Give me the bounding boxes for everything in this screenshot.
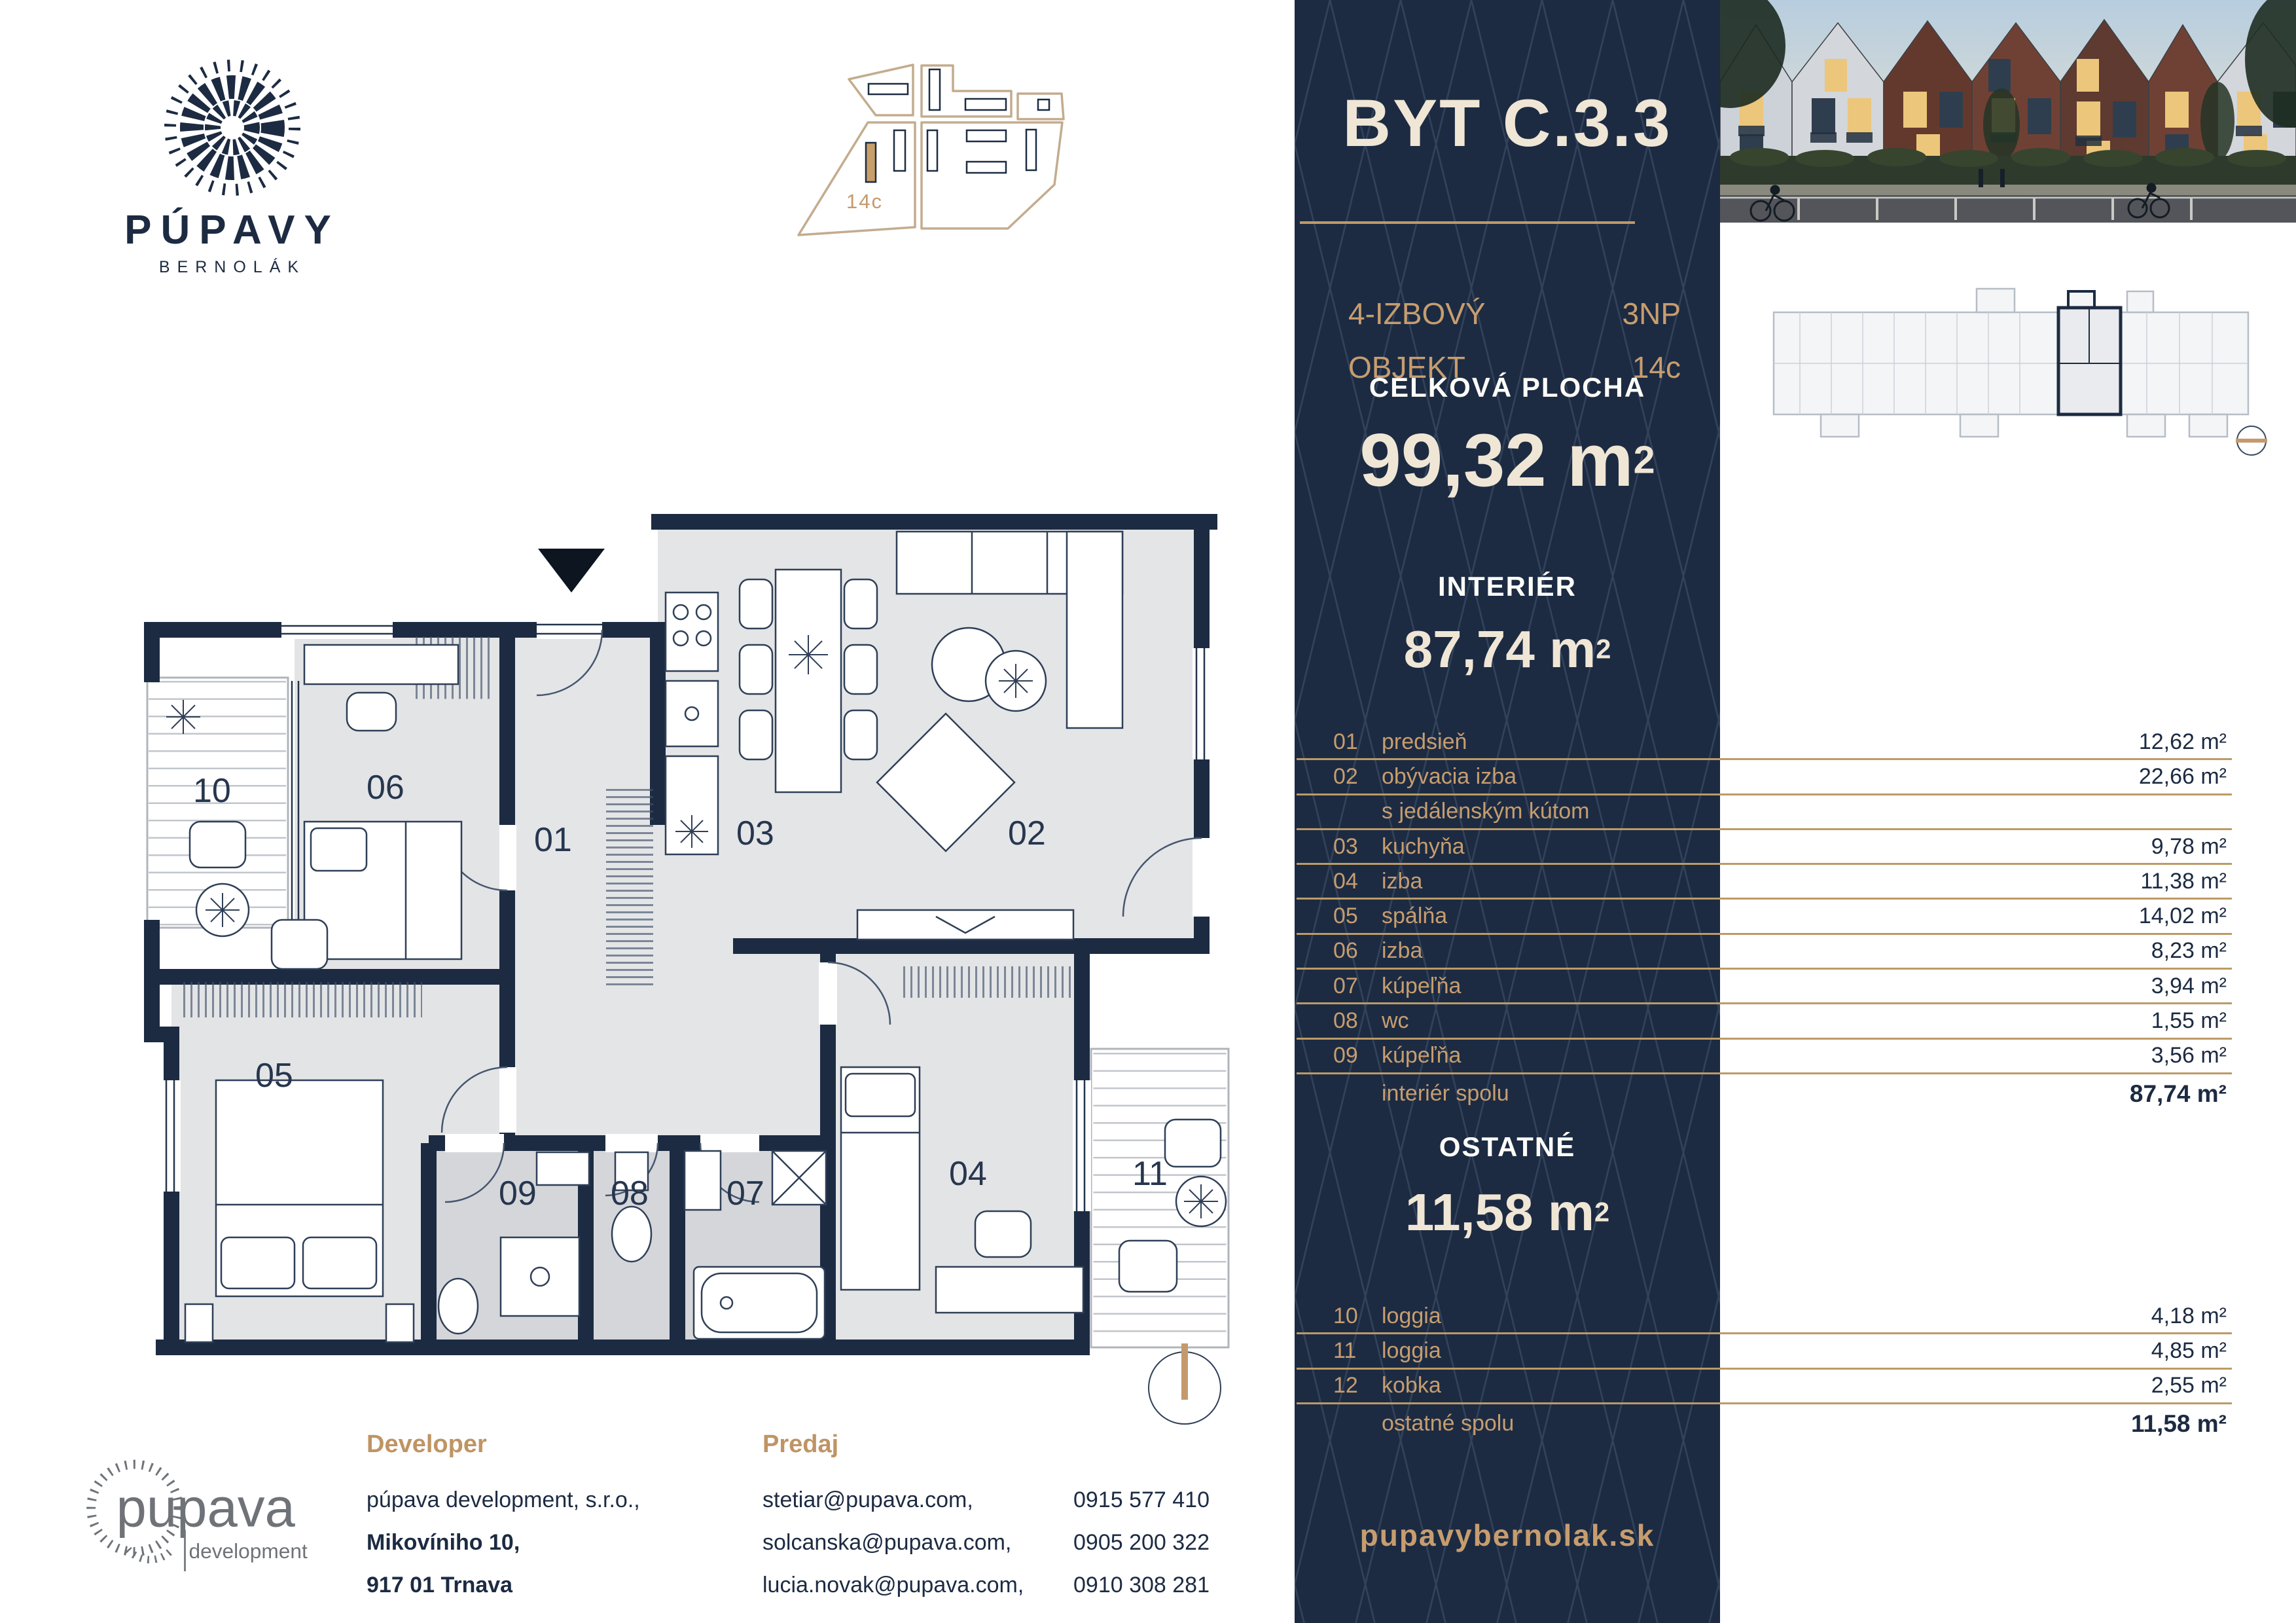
sales-phone: 0915 577 410 [1073, 1487, 1210, 1513]
plan-label-11: 11 [1132, 1155, 1168, 1193]
sales-heading: Predaj [762, 1431, 838, 1459]
area-row: 01predsieň12,62 m² [1297, 725, 2232, 760]
brand-name: PÚPAVY [124, 208, 340, 253]
plan-label-05: 05 [255, 1057, 293, 1095]
room-label: s jedálenským kútom [1382, 799, 2227, 824]
developer-city: 917 01 Trnava [367, 1573, 512, 1598]
other-sup: 2 [1594, 1197, 1609, 1228]
room-area: 8,23 m² [2151, 938, 2227, 964]
plan-label-09: 09 [499, 1175, 537, 1213]
room-number: 07 [1333, 974, 1382, 999]
room-label: predsieň [1382, 729, 2139, 755]
area-row: s jedálenským kútom [1297, 795, 2232, 830]
room-label: loggia [1382, 1338, 2151, 1364]
area-row: 08wc1,55 m² [1297, 1004, 2232, 1039]
brand-subtitle: BERNOLÁK [159, 257, 306, 276]
plan-label-07: 07 [726, 1175, 764, 1213]
overview-highlighted-unit [2058, 291, 2121, 414]
area-row: 02obývacia izba22,66 m² [1297, 760, 2232, 795]
site-plan-label: 14c [846, 190, 883, 213]
room-number: 11 [1333, 1338, 1382, 1364]
developer-street: Mikovíniho 10, [367, 1530, 520, 1556]
floor-plan: 01 02 03 04 05 06 07 08 09 10 11 [118, 458, 1270, 1427]
room-label: kobka [1382, 1373, 2151, 1398]
brand-logo: PÚPAVY BERNOLÁK [92, 39, 373, 282]
other-value: 11,58 m2 [1295, 1182, 1720, 1243]
compass-icon [1149, 1343, 1221, 1424]
interior-label: INTERIÉR [1295, 571, 1720, 602]
room-number: 04 [1333, 869, 1382, 894]
area-row: 07kúpeľňa3,94 m² [1297, 970, 2232, 1004]
plan-label-04: 04 [949, 1155, 987, 1193]
dev-logo-name: pupava [117, 1478, 296, 1539]
area-row: 06izba8,23 m² [1297, 935, 2232, 970]
other-number: 11,58 m [1405, 1183, 1594, 1241]
room-number: 02 [1333, 764, 1382, 790]
developer-heading: Developer [367, 1431, 487, 1459]
interior-number: 87,74 m [1404, 620, 1596, 678]
room-area: 4,18 m² [2151, 1304, 2227, 1329]
room-number: 05 [1333, 903, 1382, 929]
room-number: 06 [1333, 938, 1382, 964]
room-area: 4,85 m² [2151, 1338, 2227, 1364]
flyer-page: PÚPAVY BERNOLÁK 14c [0, 0, 2296, 1623]
room-area: 9,78 m² [2151, 834, 2227, 860]
area-total-row: ostatné spolu11,58 m² [1297, 1404, 2232, 1444]
room-number: 09 [1333, 1043, 1382, 1068]
room-area: 3,56 m² [2151, 1043, 2227, 1068]
area-row: 11loggia4,85 m² [1297, 1334, 2232, 1369]
other-area-table: 10loggia4,18 m²11loggia4,85 m²12kobka2,5… [1297, 1300, 2232, 1444]
divider [1300, 221, 1635, 224]
room-label: kúpeľňa [1382, 1043, 2151, 1068]
developer-name: púpava development, s.r.o., [367, 1487, 640, 1513]
entrance-arrow-icon [538, 549, 605, 593]
plan-label-02: 02 [1008, 814, 1046, 852]
room-area: 87,74 m² [2130, 1080, 2227, 1108]
interior-value: 87,74 m2 [1295, 619, 1720, 680]
room-label: izba [1382, 869, 2140, 894]
room-label: kuchyňa [1382, 834, 2151, 860]
developer-logo: pupava development [62, 1427, 334, 1623]
room-label: spálňa [1382, 903, 2139, 929]
room-area: 1,55 m² [2151, 1008, 2227, 1034]
room-label: loggia [1382, 1304, 2151, 1329]
dandelion-icon [170, 65, 295, 190]
room-label: ostatné spolu [1382, 1411, 2131, 1436]
compass-icon [2236, 426, 2267, 455]
building-overview-plan [1761, 272, 2271, 462]
sales-phone: 0910 308 281 [1073, 1573, 1210, 1598]
room-label: izba [1382, 938, 2151, 964]
sales-email: solcanska@pupava.com, [762, 1530, 1011, 1556]
sales-phone: 0905 200 322 [1073, 1530, 1210, 1556]
total-area-number: 99,32 m [1359, 419, 1633, 502]
interior-area-table: 01predsieň12,62 m²02obývacia izba22,66 m… [1297, 725, 2232, 1114]
room-label: kúpeľňa [1382, 974, 2151, 999]
floor-number: 3NP [1623, 287, 1681, 340]
room-area: 12,62 m² [2139, 729, 2227, 755]
total-area-sup: 2 [1634, 438, 1655, 482]
apartment-title: BYT C.3.3 [1295, 85, 1720, 162]
area-total-row: interiér spolu87,74 m² [1297, 1074, 2232, 1114]
area-row: 05spálňa14,02 m² [1297, 900, 2232, 934]
room-label: wc [1382, 1008, 2151, 1034]
area-row: 03kuchyňa9,78 m² [1297, 830, 2232, 865]
area-row: 04izba11,38 m² [1297, 865, 2232, 900]
room-number: 08 [1333, 1008, 1382, 1034]
building-photo [1720, 0, 2296, 223]
area-row: 12kobka2,55 m² [1297, 1370, 2232, 1404]
plan-label-01: 01 [534, 821, 572, 859]
sales-email: lucia.novak@pupava.com, [762, 1573, 1024, 1598]
room-area: 11,38 m² [2140, 869, 2227, 894]
area-row: 09kúpeľňa3,56 m² [1297, 1040, 2232, 1074]
room-number: 12 [1333, 1373, 1382, 1398]
plan-label-10: 10 [193, 772, 231, 810]
other-label: OSTATNÉ [1295, 1131, 1720, 1163]
site-highlighted-building [866, 143, 876, 182]
total-area-label: CELKOVÁ PLOCHA [1295, 372, 1720, 403]
room-number: 03 [1333, 834, 1382, 860]
sales-email: stetiar@pupava.com, [762, 1487, 973, 1513]
website: pupavybernolak.sk [1295, 1518, 1720, 1553]
area-row: 10loggia4,18 m² [1297, 1300, 2232, 1334]
plan-label-03: 03 [736, 814, 774, 852]
room-label: interiér spolu [1382, 1081, 2130, 1106]
dev-logo-sub: development [189, 1539, 308, 1563]
site-plan: 14c [779, 49, 1106, 265]
room-number: 01 [1333, 729, 1382, 755]
room-area: 11,58 m² [2131, 1410, 2227, 1438]
room-area: 3,94 m² [2151, 974, 2227, 999]
interior-sup: 2 [1596, 634, 1611, 665]
type-line1: 4-IZBOVÝ [1348, 287, 1486, 340]
room-area: 2,55 m² [2151, 1373, 2227, 1398]
room-label: obývacia izba [1382, 764, 2139, 790]
room-number: 10 [1333, 1304, 1382, 1329]
total-area-value: 99,32 m2 [1295, 418, 1720, 503]
plan-label-08: 08 [611, 1175, 649, 1213]
room-area: 22,66 m² [2139, 764, 2227, 790]
plan-label-06: 06 [367, 769, 404, 807]
room-area: 14,02 m² [2139, 903, 2227, 929]
